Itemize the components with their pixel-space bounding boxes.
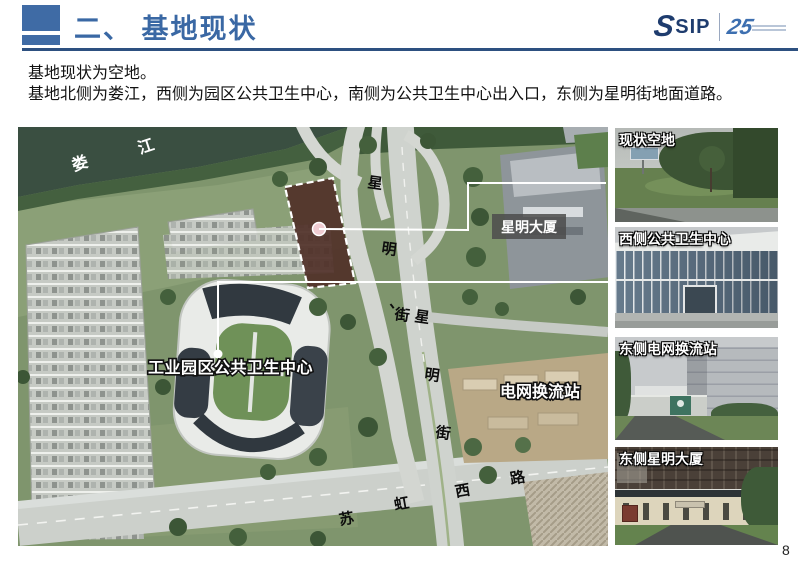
svg-text:星明大厦: 星明大厦 [501,219,558,235]
photo-caption: 东侧星明大厦 [619,449,703,469]
anniversary-25-logo: 25 [725,17,754,37]
photo-xingming-tower: 东侧星明大厦 [615,447,778,545]
converter-station-label: 电网换流站 [500,382,580,401]
header-divider [22,48,798,51]
xingming-tower-label: 星明大厦 [492,214,566,239]
svg-text:西: 西 [454,482,472,501]
converter-station-area [448,353,608,463]
building-sign [622,505,638,522]
svg-text:星: 星 [413,308,430,327]
intro-line-1: 基地现状为空地。 [28,63,788,84]
photo-caption: 西侧公共卫生中心 [619,229,731,249]
svg-text:苏: 苏 [338,509,356,529]
svg-text:明: 明 [380,240,397,259]
logo-divider [719,13,720,41]
photo-caption: 现状空地 [619,130,675,150]
photo-vacant-land: 现状空地 [615,128,778,222]
anniversary-small-text [752,25,786,31]
satellite-map: 星明大厦 工业园区公共卫生中心 电网换流站 娄 江 星 明 、 街 星 明 街 … [18,127,608,546]
svg-text:街: 街 [392,305,410,325]
svg-text:星: 星 [366,174,383,193]
page-title: 二、 基地现状 [74,7,258,46]
svg-text:明: 明 [423,366,440,385]
page-number: 8 [782,542,790,558]
photo-caption: 东侧电网换流站 [619,339,717,359]
svg-text:虹: 虹 [393,495,411,514]
sip-logo-text: SIP [675,16,710,39]
sip-logo: S SIP 25 [654,10,786,44]
title-block-icon [22,5,60,45]
bottom-right-building [523,472,608,546]
health-center-label: 工业园区公共卫生中心 [148,358,313,377]
intro-line-2: 基地北侧为娄江，西侧为园区公共卫生中心，南侧为公共卫生中心出入口，东侧为星明街地… [28,84,788,105]
photo-health-center: 西侧公共卫生中心 [615,227,778,328]
svg-text:街: 街 [433,423,451,443]
photo-converter-station: 东侧电网换流站 [615,337,778,440]
intro-text: 基地现状为空地。 基地北侧为娄江，西侧为园区公共卫生中心，南侧为公共卫生中心出入… [28,63,788,105]
slide: 二、 基地现状 S SIP 25 基地现状为空地。 基地北侧为娄江，西侧为园区公… [0,0,800,565]
sip-swoosh-icon: S [652,12,676,42]
photo-column: 现状空地 西侧公共卫生中心 东侧电网换流站 [615,128,778,545]
